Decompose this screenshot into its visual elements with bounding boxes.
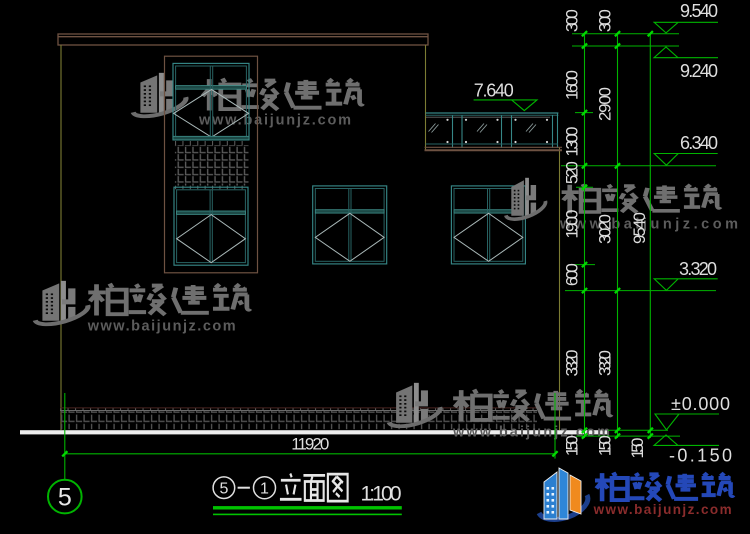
svg-text:150: 150 xyxy=(628,438,647,459)
svg-text:150: 150 xyxy=(596,435,615,456)
svg-text:1600: 1600 xyxy=(563,70,582,100)
svg-text:2900: 2900 xyxy=(596,87,615,121)
svg-text:150: 150 xyxy=(563,435,582,456)
svg-text:9.540: 9.540 xyxy=(680,1,718,21)
svg-text:1300: 1300 xyxy=(563,127,582,157)
svg-text:3.320: 3.320 xyxy=(679,259,717,279)
svg-text:-0.150: -0.150 xyxy=(669,446,732,466)
svg-text:7.640: 7.640 xyxy=(474,80,514,100)
svg-text:www.baijunjz.com: www.baijunjz.com xyxy=(593,502,732,517)
svg-text:5: 5 xyxy=(219,481,228,498)
svg-text:1:100: 1:100 xyxy=(361,483,402,506)
svg-text:9540: 9540 xyxy=(630,212,649,244)
svg-text:3020: 3020 xyxy=(596,214,615,244)
svg-text:±0.000: ±0.000 xyxy=(671,394,730,414)
svg-text:1: 1 xyxy=(260,481,269,498)
svg-text:520: 520 xyxy=(563,161,582,184)
svg-text:5: 5 xyxy=(58,484,72,512)
svg-text:300: 300 xyxy=(563,9,582,32)
svg-text:9.240: 9.240 xyxy=(680,61,718,81)
svg-text:3320: 3320 xyxy=(596,350,615,376)
svg-text:600: 600 xyxy=(563,263,582,286)
svg-text:3320: 3320 xyxy=(563,350,582,377)
svg-text:1900: 1900 xyxy=(563,210,582,239)
svg-text:300: 300 xyxy=(596,9,615,32)
svg-text:11920: 11920 xyxy=(291,435,329,454)
svg-text:6.340: 6.340 xyxy=(680,133,718,153)
